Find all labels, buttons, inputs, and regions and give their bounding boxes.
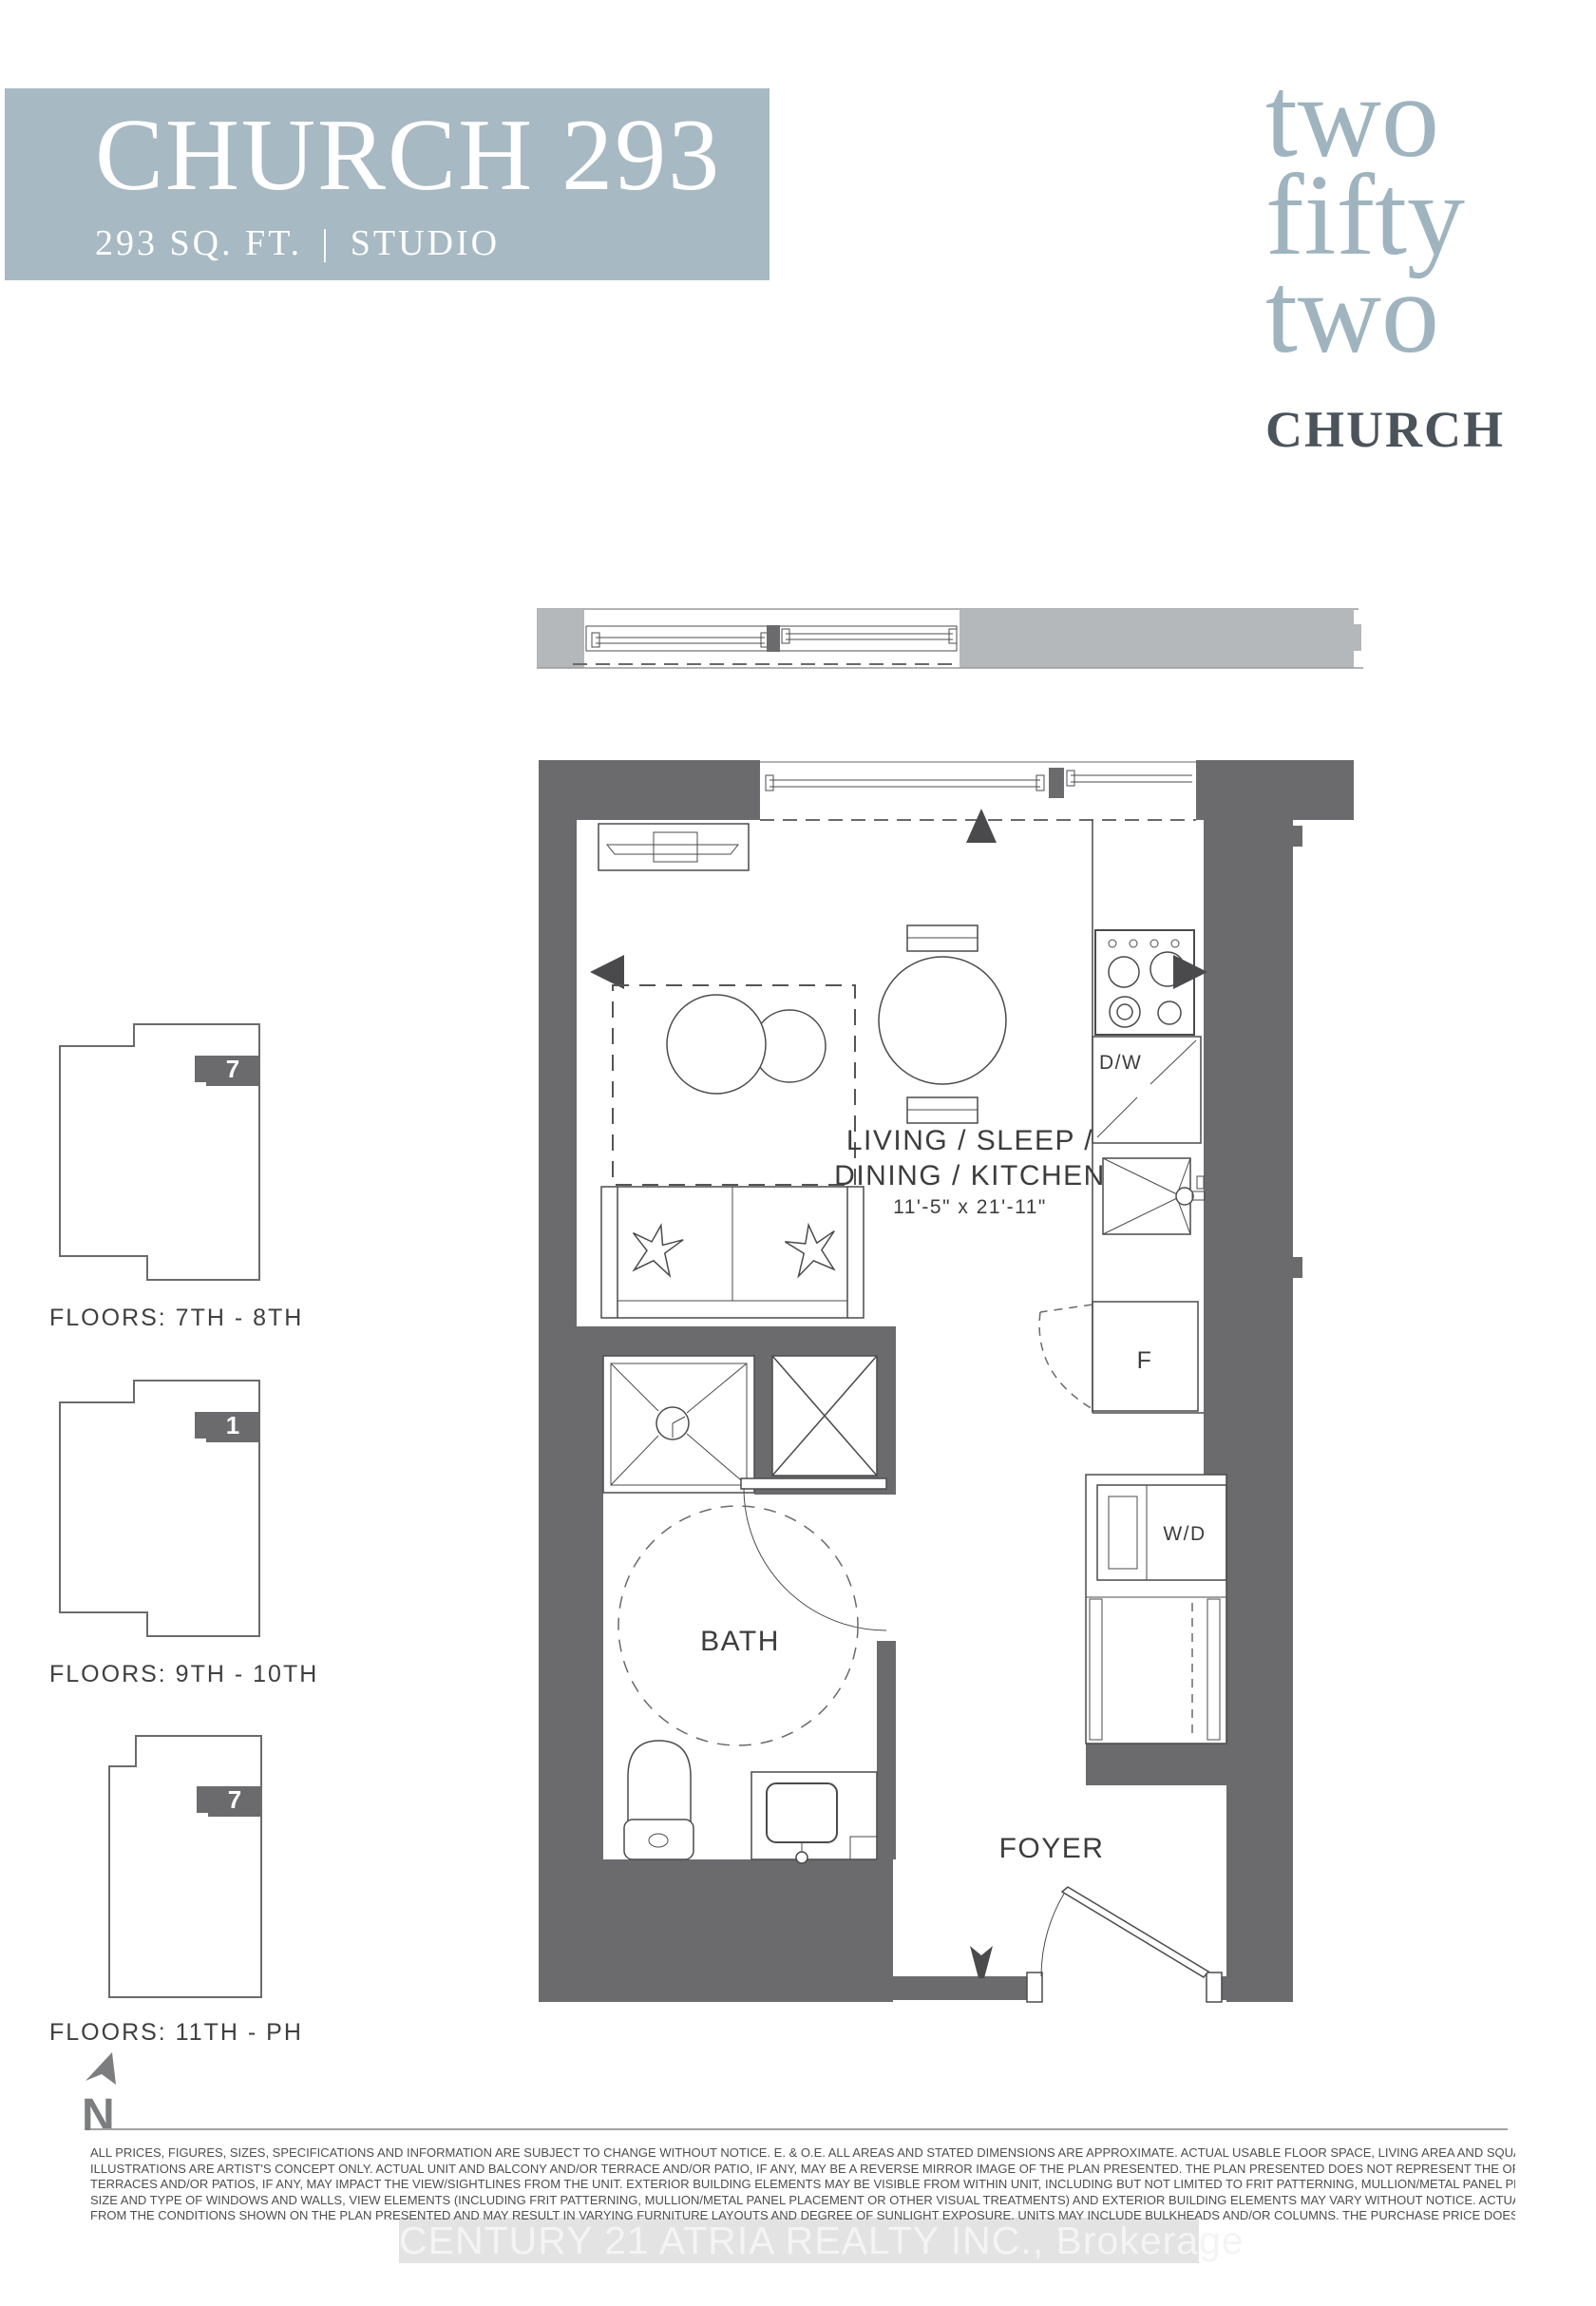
disclaimer-line: TERRACES AND/OR PATIOS, IF ANY, MAY IMPA… [90, 2177, 1515, 2193]
window-arrow-left-icon [590, 955, 624, 989]
keyplan-unit-number: 7 [228, 1785, 241, 1814]
balcony-strip [537, 609, 1363, 668]
entry-arrow-down-icon [970, 1946, 993, 1978]
living-label-line2: DINING / KITCHEN [834, 1160, 1106, 1191]
keyplan-outline-2: 1 [52, 1378, 267, 1642]
disclaimer-line: ILLUSTRATIONS ARE ARTIST'S CONCEPT ONLY.… [90, 2162, 1515, 2178]
logo-brand-church: CHURCH [1265, 400, 1505, 459]
closet-box [772, 1356, 877, 1476]
laundry-closet: W/D [1086, 1475, 1226, 1744]
kitchen-sink [1103, 1158, 1205, 1234]
dishwasher: D/W [1092, 1037, 1201, 1143]
north-compass: N [82, 2050, 139, 2139]
logo-word-two-2: two [1265, 264, 1505, 362]
cooktop [1095, 930, 1194, 1035]
bed-outline [613, 985, 855, 1185]
bathroom: BATH [618, 1478, 886, 1863]
window-arrow-right-icon [1173, 955, 1207, 989]
footer-divider [90, 2128, 1508, 2130]
unit-area: 293 SQ. FT. [95, 223, 302, 263]
bath-door-leaf [741, 1478, 886, 1489]
keyplan-floors-label: FLOORS: 9TH - 10TH [49, 1661, 270, 1688]
dishwasher-label: D/W [1099, 1052, 1142, 1074]
toilet [624, 1741, 693, 1859]
keyplan-unit-number: 7 [226, 1055, 239, 1083]
unit-header: CHURCH 293 293 SQ. FT.|STUDIO [5, 88, 769, 280]
bath-label: BATH [700, 1626, 780, 1657]
foyer-label: FOYER [999, 1833, 1105, 1864]
window-arrow-up-icon [966, 809, 997, 843]
bath-vanity [751, 1772, 877, 1863]
keyplan-outline-3: 7 [52, 1734, 267, 2000]
building-logo: two fifty two CHURCH [1265, 68, 1505, 459]
entry-door-leaf [1062, 1887, 1208, 1977]
page-title: CHURCH 293 [95, 105, 769, 207]
disclaimer-line: SIZE AND TYPE OF WINDOWS AND WALLS, VIEW… [90, 2193, 1515, 2209]
unit-type: STUDIO [351, 223, 500, 263]
floor-plan-drawing: D/W F [527, 594, 1363, 2029]
keyplan-outline-1: 7 [52, 1021, 267, 1286]
washer-dryer-label: W/D [1163, 1523, 1206, 1545]
keyplan-floors-11-ph: 7 FLOORS: 11TH - PH [49, 1734, 270, 2047]
main-floor-plan: D/W F [527, 594, 1363, 2033]
fridge: F [1039, 1302, 1198, 1411]
living-label-line1: LIVING / SLEEP / [846, 1125, 1093, 1156]
shower [603, 1356, 754, 1493]
faucet-icon [796, 1852, 807, 1863]
faucet-icon [1176, 1188, 1193, 1205]
living-window [760, 762, 1196, 820]
entry-door [1027, 1887, 1222, 2002]
subtitle-separator: | [321, 222, 332, 264]
legal-disclaimer: ALL PRICES, FIGURES, SIZES, SPECIFICATIO… [90, 2145, 1515, 2224]
fridge-label: F [1137, 1347, 1153, 1374]
keyplan-floors-label: FLOORS: 7TH - 8TH [49, 1305, 270, 1332]
unit-subtitle: 293 SQ. FT.|STUDIO [95, 222, 769, 264]
north-arrow-icon [82, 2050, 123, 2087]
keyplan-unit-number: 1 [226, 1411, 239, 1439]
keyplan-floors-7-8: 7 FLOORS: 7TH - 8TH [49, 1021, 270, 1332]
north-label: N [82, 2093, 139, 2139]
dining-table [879, 925, 1006, 1123]
keyplan-floors-label: FLOORS: 11TH - PH [49, 2019, 270, 2047]
pillow-icon [626, 1220, 686, 1279]
brokerage-watermark: CENTURY 21 ATRIA REALTY INC., Brokerage [399, 2218, 1199, 2263]
keyplan-floors-9-10: 1 FLOORS: 9TH - 10TH [49, 1378, 270, 1688]
disclaimer-line: ALL PRICES, FIGURES, SIZES, SPECIFICATIO… [90, 2145, 1515, 2162]
kitchen-counter [1092, 820, 1204, 1413]
living-dimensions: 11'-5" x 21'-11" [893, 1196, 1047, 1218]
disclaimer-line: FROM THE CONDITIONS SHOWN ON THE PLAN PR… [90, 2208, 1515, 2224]
sofa [601, 1187, 864, 1318]
floorplan-page: CHURCH 293 293 SQ. FT.|STUDIO two fifty … [0, 0, 1596, 2306]
pillow-icon [783, 1222, 840, 1278]
tv-console [598, 824, 749, 870]
